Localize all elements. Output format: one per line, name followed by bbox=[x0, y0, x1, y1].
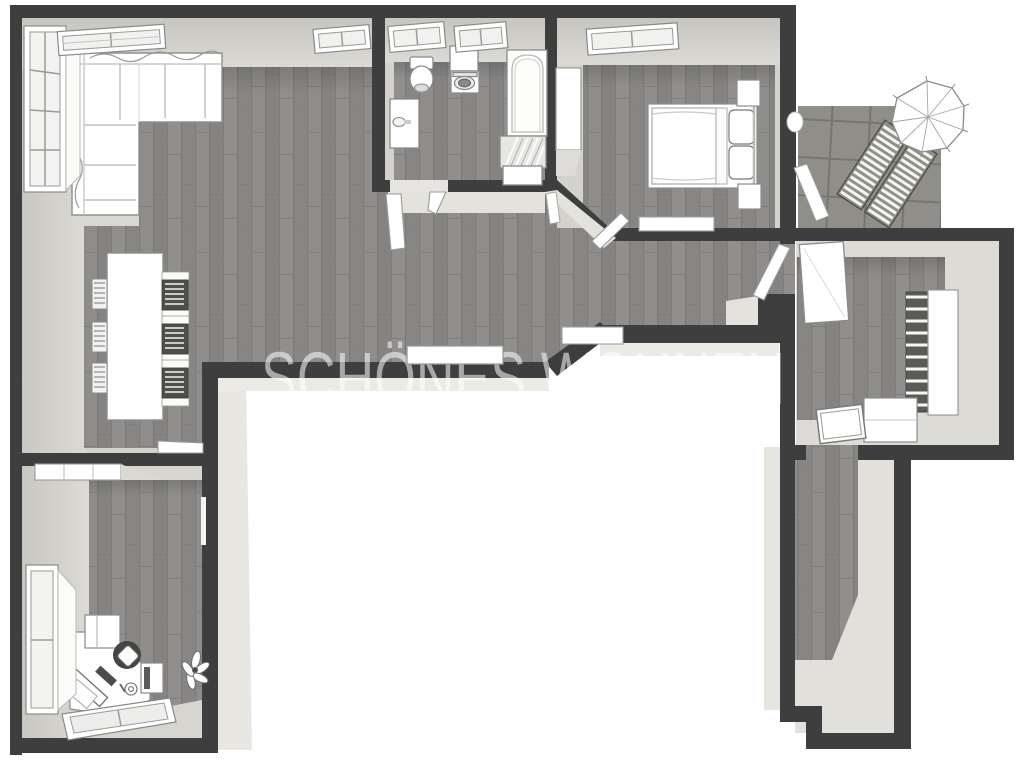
svg-text:SCHÖNES WOHNEN: SCHÖNES WOHNEN bbox=[261, 337, 785, 420]
